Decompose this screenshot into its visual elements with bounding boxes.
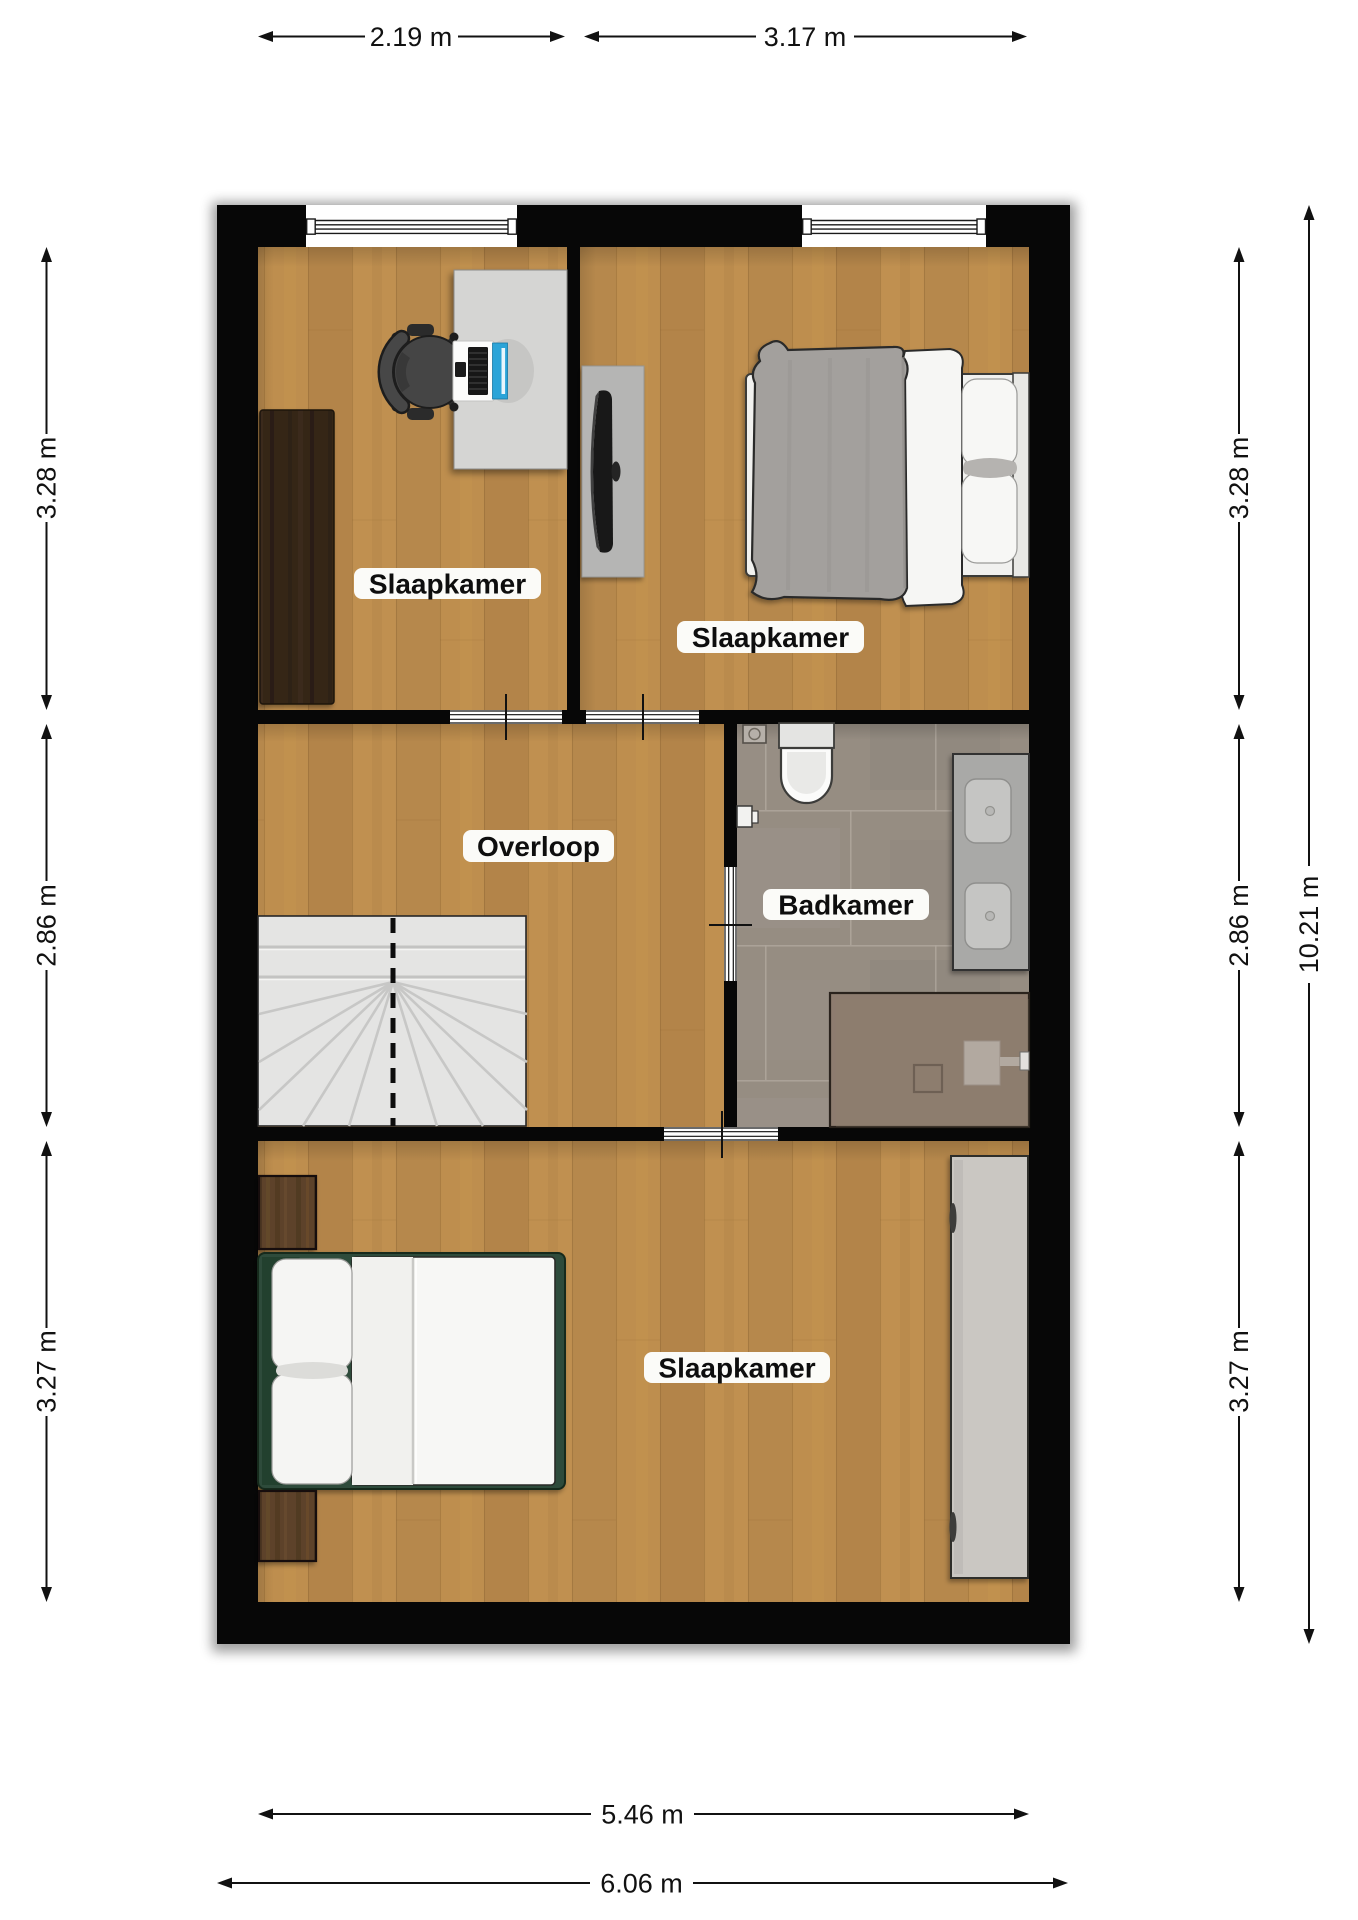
svg-text:2.19 m: 2.19 m xyxy=(370,22,453,52)
svg-text:2.86 m: 2.86 m xyxy=(32,884,62,967)
svg-text:3.27 m: 3.27 m xyxy=(1224,1330,1254,1413)
svg-text:3.17 m: 3.17 m xyxy=(764,22,847,52)
svg-text:6.06 m: 6.06 m xyxy=(600,1869,683,1899)
svg-text:2.86 m: 2.86 m xyxy=(1224,884,1254,967)
svg-text:Slaapkamer: Slaapkamer xyxy=(692,622,849,653)
svg-text:Overloop: Overloop xyxy=(477,831,600,862)
svg-text:3.27 m: 3.27 m xyxy=(32,1330,62,1413)
svg-text:5.46 m: 5.46 m xyxy=(601,1800,684,1830)
svg-text:10.21 m: 10.21 m xyxy=(1294,876,1324,974)
svg-text:3.28 m: 3.28 m xyxy=(32,437,62,520)
svg-text:Slaapkamer: Slaapkamer xyxy=(658,1353,815,1384)
svg-text:Slaapkamer: Slaapkamer xyxy=(369,569,526,600)
svg-text:Badkamer: Badkamer xyxy=(778,890,914,921)
svg-text:3.28 m: 3.28 m xyxy=(1224,437,1254,520)
